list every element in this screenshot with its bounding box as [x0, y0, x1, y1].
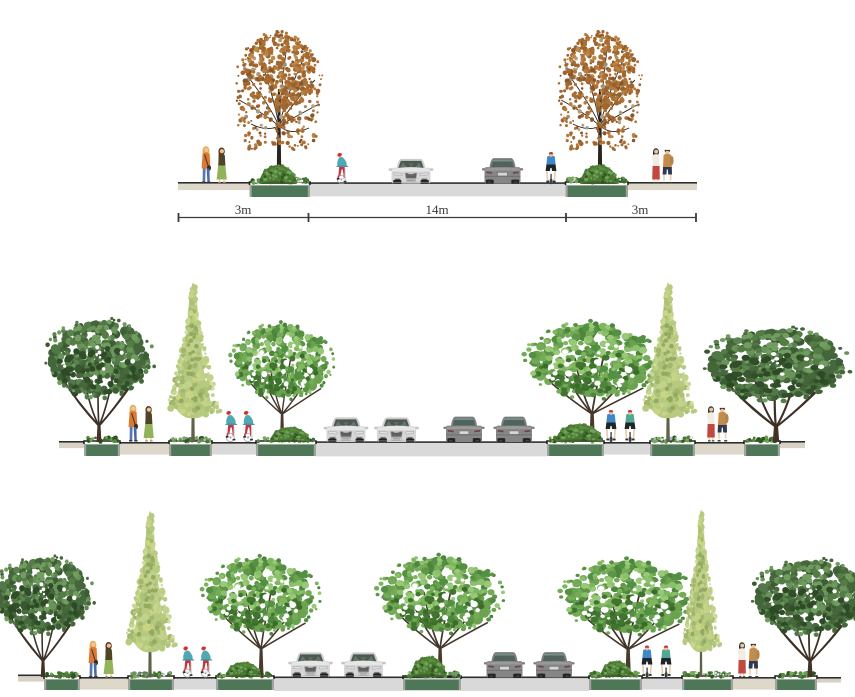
svg-text:3m: 3m [632, 202, 649, 217]
svg-text:14m: 14m [425, 202, 448, 217]
svg-text:3m: 3m [235, 202, 252, 217]
